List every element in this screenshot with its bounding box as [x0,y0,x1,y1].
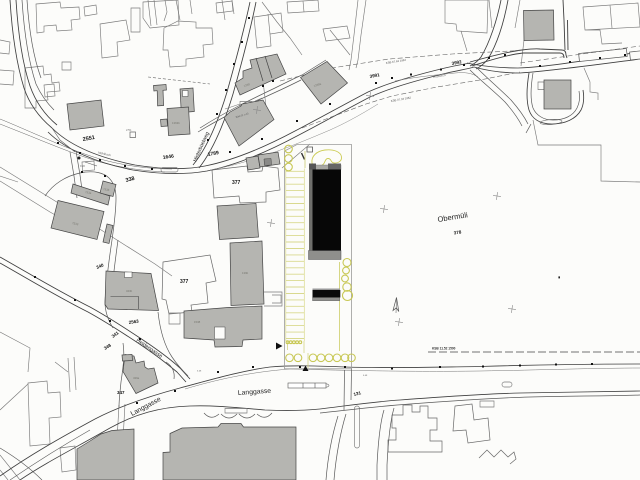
svg-text:377: 377 [180,279,189,285]
svg-text:KSB 11.52 1500: KSB 11.52 1500 [432,347,456,351]
svg-text:1538: 1538 [194,320,201,324]
svg-text:139b: 139b [242,271,249,275]
svg-text:KSB: KSB [80,165,85,168]
svg-text:377: 377 [232,180,241,186]
svg-text:347: 347 [117,390,125,395]
svg-text:439a: 439a [133,376,140,380]
svg-text:343b: 343b [126,289,133,293]
svg-text:2754: 2754 [126,129,132,132]
svg-text:1363b: 1363b [172,121,180,125]
